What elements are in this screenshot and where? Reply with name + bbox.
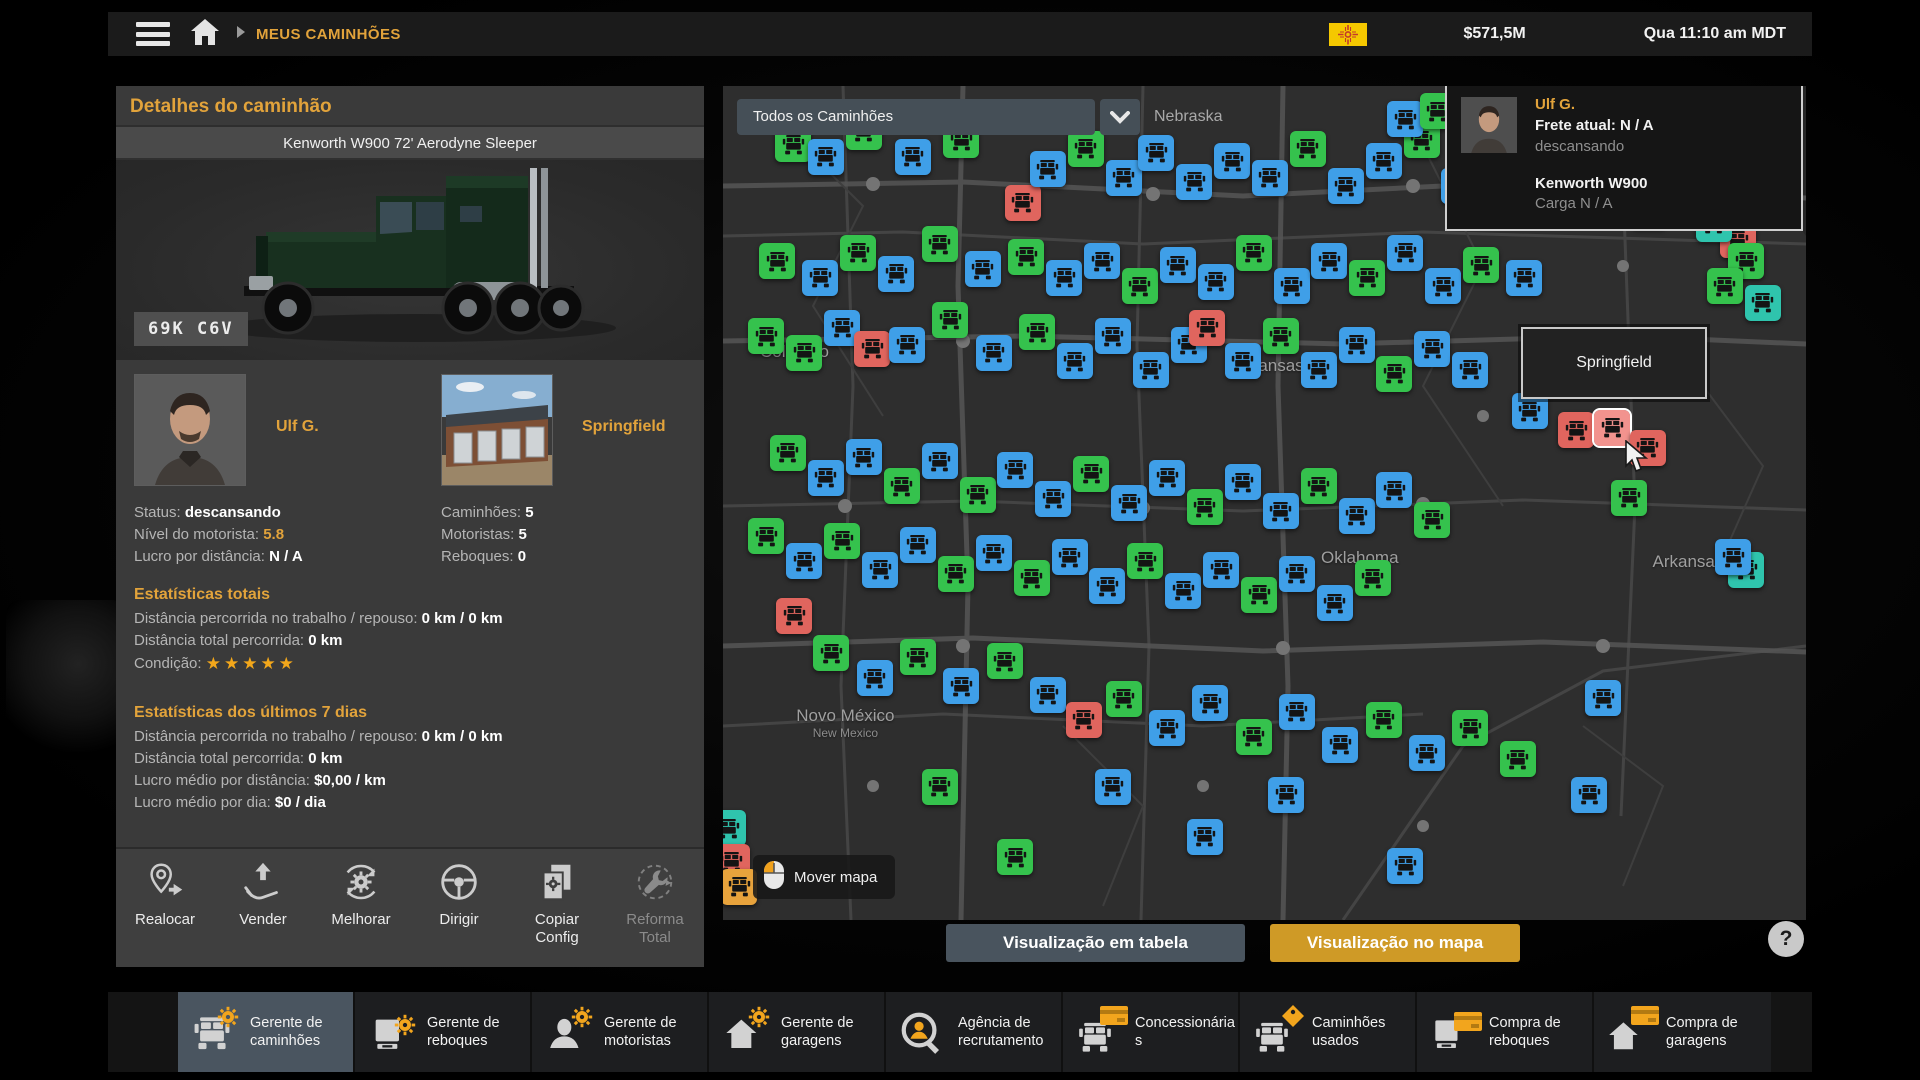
- person-gear-icon: [544, 1009, 594, 1055]
- upgrade-gear-icon: [338, 859, 384, 905]
- menu-icon[interactable]: [130, 19, 176, 49]
- truck-marker[interactable]: [1409, 735, 1445, 771]
- toolbar-used-trucks[interactable]: Caminhões usados: [1240, 992, 1417, 1072]
- stat-row: Lucro médio por dia: $0 / dia: [134, 792, 503, 814]
- truck-marker[interactable]: [862, 552, 898, 588]
- stat-row: Distância total percorrida: 0 km: [134, 748, 503, 770]
- mouse-icon: [763, 860, 785, 895]
- truck-marker[interactable]: [824, 523, 860, 559]
- truck-marker[interactable]: [960, 477, 996, 513]
- truck-marker[interactable]: [1149, 460, 1185, 496]
- stats-total-title: Estatísticas totais: [134, 586, 503, 604]
- house-gear-icon: [721, 1009, 771, 1055]
- truck-marker[interactable]: [1127, 543, 1163, 579]
- truck-marker[interactable]: [1198, 264, 1234, 300]
- truck-marker[interactable]: [786, 543, 822, 579]
- driver-level-row: Nível do motorista: 5.8: [134, 524, 303, 546]
- city-tooltip: Springfield: [1521, 327, 1707, 399]
- card-freight: Frete atual: N / A: [1535, 115, 1789, 136]
- truck-marker[interactable]: [1263, 318, 1299, 354]
- truck-marker[interactable]: [922, 443, 958, 479]
- driver-card-avatar: [1461, 97, 1517, 153]
- truck-marker[interactable]: [1176, 164, 1212, 200]
- truck-marker[interactable]: [1095, 769, 1131, 805]
- truck-marker[interactable]: [1030, 151, 1066, 187]
- truck-marker[interactable]: [1084, 243, 1120, 279]
- truck-marker[interactable]: [1252, 160, 1288, 196]
- truck-marker[interactable]: [723, 810, 746, 846]
- truck-marker[interactable]: [857, 660, 893, 696]
- truck-marker[interactable]: [1133, 352, 1169, 388]
- stat-row: Distância percorrida no trabalho / repou…: [134, 608, 503, 630]
- truck-marker[interactable]: [1014, 560, 1050, 596]
- truck-marker[interactable]: [1500, 741, 1536, 777]
- truck-marker[interactable]: [1328, 168, 1364, 204]
- truck-marker[interactable]: [1387, 101, 1423, 137]
- background-tire-photo: [6, 600, 126, 760]
- home-icon[interactable]: [190, 18, 220, 51]
- truck-marker[interactable]: [748, 518, 784, 554]
- trailer-card-icon: [1429, 1009, 1479, 1055]
- truck-marker[interactable]: [878, 256, 914, 292]
- help-button[interactable]: ?: [1768, 921, 1804, 957]
- truck-marker[interactable]: [884, 468, 920, 504]
- toolbar-garage-purchase[interactable]: Compra de garagens: [1594, 992, 1771, 1072]
- truck-marker[interactable]: [1274, 268, 1310, 304]
- truck-marker[interactable]: [808, 460, 844, 496]
- stat-row: Distância percorrida no trabalho / repou…: [134, 726, 503, 748]
- driver-name[interactable]: Ulf G.: [276, 418, 319, 436]
- truck-marker[interactable]: [1138, 135, 1174, 171]
- region-label: Nebraska: [1154, 108, 1222, 126]
- truck-marker[interactable]: [1225, 464, 1261, 500]
- truck-marker[interactable]: [759, 243, 795, 279]
- truck-marker[interactable]: [1630, 430, 1666, 466]
- truck-marker[interactable]: [1106, 160, 1142, 196]
- truck-marker[interactable]: [895, 139, 931, 175]
- truck-marker[interactable]: [840, 235, 876, 271]
- driver-status-row: Status: descansando: [134, 502, 303, 524]
- chevron-right-icon: [236, 25, 246, 44]
- truck-marker[interactable]: [1005, 185, 1041, 221]
- truck-marker[interactable]: [1160, 247, 1196, 283]
- truck-marker[interactable]: [900, 639, 936, 675]
- truck-details-panel: Detalhes do caminhão Kenworth W900 72' A…: [116, 86, 704, 967]
- truck-marker[interactable]: [1355, 560, 1391, 596]
- card-driver-name: Ulf G.: [1535, 95, 1789, 115]
- truck-marker[interactable]: [889, 327, 925, 363]
- driver-profit-row: Lucro por distância: N / A: [134, 546, 303, 568]
- copy-config-icon: [534, 859, 580, 905]
- fleet-map[interactable]: ColoradoKansasOklahomaNovo MéxicoNew Mex…: [723, 86, 1806, 920]
- garage-trailers-row: Reboques: 0: [441, 546, 534, 568]
- panel-title: Detalhes do caminhão: [116, 86, 704, 127]
- truck-marker[interactable]: [1585, 680, 1621, 716]
- truck-marker[interactable]: [1035, 481, 1071, 517]
- truck-marker[interactable]: [1187, 489, 1223, 525]
- card-cargo: Carga N / A: [1535, 194, 1789, 214]
- truck-marker[interactable]: [1366, 702, 1402, 738]
- truck-marker[interactable]: [1268, 777, 1304, 813]
- truck-marker[interactable]: [748, 318, 784, 354]
- card-truck: Kenworth W900: [1535, 174, 1789, 194]
- truck-marker[interactable]: [922, 769, 958, 805]
- truck-marker[interactable]: [1414, 331, 1450, 367]
- truck-marker[interactable]: [1301, 468, 1337, 504]
- stats-total-section: Estatísticas totais Distância percorrida…: [134, 586, 503, 675]
- move-map-button[interactable]: Mover mapa: [753, 855, 895, 899]
- recruitment-magnifier-icon: [898, 1009, 948, 1055]
- truck-marker[interactable]: [1225, 343, 1261, 379]
- truck-marker[interactable]: [1707, 268, 1743, 304]
- bottom-strip: [108, 1072, 1812, 1080]
- truck-marker[interactable]: [1366, 143, 1402, 179]
- truck-marker[interactable]: [987, 643, 1023, 679]
- truck-marker[interactable]: [786, 335, 822, 371]
- relocate-pin-icon: [142, 859, 188, 905]
- truck-card-icon: [1075, 1009, 1125, 1055]
- truck-marker[interactable]: [900, 527, 936, 563]
- truck-marker[interactable]: [770, 435, 806, 471]
- garage-trucks-row: Caminhões: 5: [441, 502, 534, 524]
- truck-marker[interactable]: [1414, 502, 1450, 538]
- truck-marker[interactable]: [1322, 727, 1358, 763]
- truck-marker[interactable]: [1052, 539, 1088, 575]
- truck-marker[interactable]: [1073, 456, 1109, 492]
- truck-marker[interactable]: [1387, 848, 1423, 884]
- truck-marker[interactable]: [1279, 556, 1315, 592]
- truck-marker[interactable]: [1192, 685, 1228, 721]
- truck-marker[interactable]: [1008, 239, 1044, 275]
- map-view-button[interactable]: Visualização no mapa: [1270, 924, 1520, 962]
- toolbar-driver-manager[interactable]: Gerente de motoristas: [532, 992, 709, 1072]
- driver-garage-section: Ulf G. Status: descansando Nível do moto…: [116, 360, 704, 570]
- truck-marker[interactable]: [1339, 327, 1375, 363]
- truck-marker[interactable]: [1019, 314, 1055, 350]
- truck-marker[interactable]: [997, 452, 1033, 488]
- truck-marker[interactable]: [1106, 681, 1142, 717]
- truck-marker[interactable]: [932, 302, 968, 338]
- truck-marker[interactable]: [1263, 493, 1299, 529]
- truck-marker[interactable]: [1311, 243, 1347, 279]
- truck-marker[interactable]: [1290, 131, 1326, 167]
- toolbar-recruitment-agency[interactable]: Agência de recrutamento: [886, 992, 1063, 1072]
- relocate-button[interactable]: Realocar: [116, 849, 214, 967]
- truck-gear-icon: [190, 1009, 240, 1055]
- truck-marker[interactable]: [1349, 260, 1385, 296]
- truck-marker[interactable]: [1066, 702, 1102, 738]
- truck-name: Kenworth W900 72' Aerodyne Sleeper: [116, 127, 704, 160]
- truck-marker[interactable]: [1376, 472, 1412, 508]
- truck-marker[interactable]: [997, 839, 1033, 875]
- truck-marker[interactable]: [976, 535, 1012, 571]
- truck-marker[interactable]: [854, 331, 890, 367]
- truck-tag-icon: [1252, 1009, 1302, 1055]
- truck-marker[interactable]: [922, 226, 958, 262]
- toolbar-garage-manager[interactable]: Gerente de garagens: [709, 992, 886, 1072]
- steering-wheel-icon: [436, 859, 482, 905]
- truck-marker[interactable]: [1068, 131, 1104, 167]
- upgrade-button[interactable]: Melhorar: [312, 849, 410, 967]
- truck-marker[interactable]: [1236, 235, 1272, 271]
- wrench-refit-icon: [632, 859, 678, 905]
- card-status: descansando: [1535, 136, 1789, 157]
- trailer-gear-icon: [367, 1009, 417, 1055]
- truck-marker[interactable]: [1301, 352, 1337, 388]
- truck-marker[interactable]: [1558, 412, 1594, 448]
- truck-marker[interactable]: [1149, 710, 1185, 746]
- truck-marker[interactable]: [965, 251, 1001, 287]
- truck-marker[interactable]: [1165, 573, 1201, 609]
- truck-marker[interactable]: [808, 139, 844, 175]
- truck-marker[interactable]: [1571, 777, 1607, 813]
- full-refit-button[interactable]: Reforma Total: [606, 849, 704, 967]
- truck-marker[interactable]: [846, 439, 882, 475]
- garage-name[interactable]: Springfield: [582, 418, 666, 436]
- toolbar-truck-manager[interactable]: Gerente de caminhões: [178, 992, 355, 1072]
- toolbar-dealers[interactable]: Concessionárias: [1063, 992, 1240, 1072]
- truck-marker[interactable]: [1111, 485, 1147, 521]
- toolbar-trailer-purchase[interactable]: Compra de reboques: [1417, 992, 1594, 1072]
- truck-marker[interactable]: [1089, 568, 1125, 604]
- truck-marker[interactable]: [813, 635, 849, 671]
- truck-marker[interactable]: [1715, 539, 1751, 575]
- truck-marker[interactable]: [1095, 318, 1131, 354]
- truck-marker[interactable]: [943, 668, 979, 704]
- stats-week-section: Estatísticas dos últimos 7 dias Distânci…: [134, 704, 503, 814]
- copy-config-button[interactable]: Copiar Config: [508, 849, 606, 967]
- truck-actions-bar: Realocar Vender Melhorar Dirigir Copiar …: [116, 847, 704, 967]
- truck-marker[interactable]: [1241, 577, 1277, 613]
- driver-portrait[interactable]: [134, 374, 246, 486]
- truck-marker[interactable]: [1203, 552, 1239, 588]
- truck-marker[interactable]: [1594, 410, 1630, 446]
- stat-row: Lucro médio por distância: $0,00 / km: [134, 770, 503, 792]
- money-balance: $571,5M: [1463, 25, 1525, 43]
- truck-photo: 69K C6V: [116, 160, 704, 360]
- bottom-toolbar: Gerente de caminhões Gerente de reboques…: [108, 992, 1812, 1072]
- truck-marker[interactable]: [1339, 498, 1375, 534]
- driver-info-card: Ulf G. Frete atual: N / A descansando Ke…: [1445, 86, 1803, 231]
- truck-marker[interactable]: [1452, 710, 1488, 746]
- truck-marker[interactable]: [938, 556, 974, 592]
- game-datetime: Qua 11:10 am MDT: [1644, 25, 1786, 43]
- truck-marker[interactable]: [1611, 480, 1647, 516]
- chevron-down-icon[interactable]: [1100, 99, 1140, 135]
- truck-marker[interactable]: [976, 335, 1012, 371]
- license-plate: 69K C6V: [134, 312, 248, 346]
- truck-marker[interactable]: [802, 260, 838, 296]
- truck-marker[interactable]: [1046, 260, 1082, 296]
- truck-marker[interactable]: [1387, 235, 1423, 271]
- stat-row: Distância total percorrida: 0 km: [134, 630, 503, 652]
- garage-drivers-row: Motoristas: 5: [441, 524, 534, 546]
- truck-marker[interactable]: [1030, 677, 1066, 713]
- toolbar-trailer-manager[interactable]: Gerente de reboques: [355, 992, 532, 1072]
- truck-marker[interactable]: [1376, 356, 1412, 392]
- truck-marker[interactable]: [1317, 585, 1353, 621]
- stats-week-title: Estatísticas dos últimos 7 dias: [134, 704, 503, 722]
- truck-filter-dropdown[interactable]: Todos os Caminhões: [737, 99, 1095, 135]
- truck-marker[interactable]: [1057, 343, 1093, 379]
- sell-hand-icon: [240, 859, 286, 905]
- truck-marker[interactable]: [1279, 694, 1315, 730]
- truck-marker[interactable]: [1745, 285, 1781, 321]
- garage-photo[interactable]: [441, 374, 553, 486]
- truck-marker[interactable]: [1122, 268, 1158, 304]
- top-bar: MEUS CAMINHÕES $571,5M Qua 11:10 am MDT: [108, 12, 1812, 56]
- truck-marker[interactable]: [1463, 247, 1499, 283]
- breadcrumb: MEUS CAMINHÕES: [256, 26, 401, 43]
- new-mexico-flag-icon: [1329, 23, 1367, 46]
- truck-marker[interactable]: [1506, 260, 1542, 296]
- truck-marker[interactable]: [1452, 352, 1488, 388]
- table-view-button[interactable]: Visualização em tabela: [946, 924, 1245, 962]
- truck-marker[interactable]: [1189, 310, 1225, 346]
- condition-row: Condição: ★★★★★: [134, 652, 503, 675]
- drive-button[interactable]: Dirigir: [410, 849, 508, 967]
- truck-marker[interactable]: [1214, 143, 1250, 179]
- sell-button[interactable]: Vender: [214, 849, 312, 967]
- truck-marker[interactable]: [1236, 719, 1272, 755]
- truck-marker[interactable]: [1187, 819, 1223, 855]
- truck-marker[interactable]: [776, 598, 812, 634]
- house-card-icon: [1606, 1009, 1656, 1055]
- condition-stars: ★★★★★: [206, 654, 297, 673]
- truck-marker[interactable]: [1425, 268, 1461, 304]
